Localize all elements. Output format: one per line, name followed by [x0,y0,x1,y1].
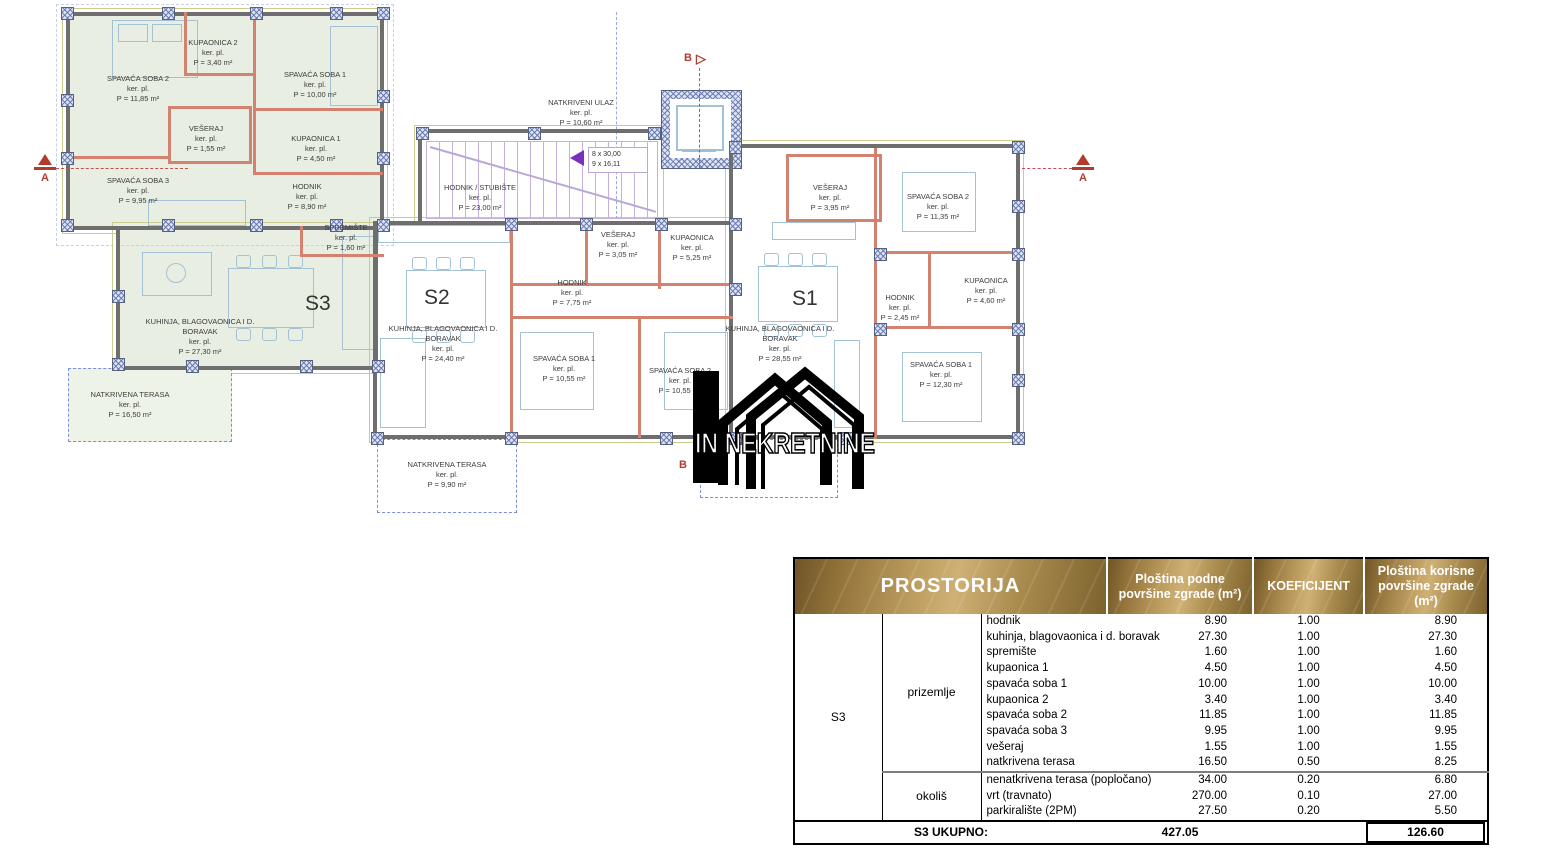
room-label-s2-veseraj: VEŠERAJ ker. pl. P = 3,05 m² [580,230,656,260]
room-label-s1-kuhinja: KUHINJA, BLAGOVAONICA I D. BORAVAK ker. … [715,324,845,364]
room-finish: ker. pl. [792,193,868,203]
room-area: P = 3,95 m² [792,203,868,213]
wall [373,221,733,225]
koef-cell: 1.00 [1253,692,1364,708]
total-label: S3 UKUPNO: [794,821,1107,844]
column [250,219,263,232]
room-name: KUPAONICA [948,276,1024,286]
podne-cell: 16.50 [1107,755,1253,772]
room-area: P = 5,25 m² [654,253,730,263]
kitchen-counter [378,225,510,243]
room-finish: ker. pl. [514,364,614,374]
stair-direction-arrow-icon [570,150,584,166]
section-line-a [56,168,188,169]
stair-dimensions: 8 x 30,00 9 x 16,11 [588,147,648,173]
podne-cell: 9.95 [1107,724,1253,740]
partition [253,12,256,175]
column [162,7,175,20]
podne-cell: 4.50 [1107,661,1253,677]
wall [380,12,384,230]
column [505,432,518,445]
table-row: okoliš nenatkrivena terasa (popločano) 3… [794,772,1488,789]
floor-plan: 8 x 30,00 9 x 16,11 [0,0,1551,530]
header-podne: Ploština podne površine zgrade (m²) [1107,558,1253,614]
unit-label-s2: S2 [424,286,450,310]
section-a-bar [34,167,56,170]
room-name: VEŠERAJ [580,230,656,240]
column [416,127,429,140]
room-finish: ker. pl. [78,400,182,410]
room-label-s1-hodnik: HODNIK ker. pl. P = 2,45 m² [861,293,939,323]
room-label-s2-kuhinja: KUHINJA, BLAGOVAONICA I D. BORAVAK ker. … [378,324,508,364]
agency-watermark: IN NEKRETNINE [693,363,878,491]
room-finish: ker. pl. [304,233,388,243]
room-area: P = 3,40 m² [168,58,258,68]
koef-cell: 1.00 [1253,677,1364,693]
room-cell: spremište [981,645,1107,661]
room-cell: natkrivena terasa [981,755,1107,772]
room-cell: spavaća soba 1 [981,677,1107,693]
korisne-cell: 1.55 [1364,740,1488,756]
podne-cell: 27.50 [1107,804,1253,821]
elevator-car [676,105,724,151]
room-finish: ker. pl. [262,192,352,202]
room-area: P = 11,35 m² [888,212,988,222]
room-finish: ker. pl. [531,108,631,118]
cooktop-icon [166,263,186,283]
partition [66,156,170,159]
column [162,219,175,232]
podne-cell: 270.00 [1107,789,1253,805]
chair [288,328,303,341]
column [371,432,384,445]
header-koeficijent: KOEFICIJENT [1253,558,1364,614]
wall [373,435,737,439]
header-korisne: Ploština korisne površine zgrade (m²) [1364,558,1488,614]
chair [764,253,779,266]
room-finish: ker. pl. [168,134,244,144]
koef-cell: 1.00 [1253,630,1364,646]
floor-group-cell: okoliš [882,772,981,821]
chair [436,257,451,270]
room-name: SPAVAĆA SOBA 1 [514,354,614,364]
room-name: NATKRIVENI ULAZ [531,98,631,108]
section-line-a [1022,168,1072,169]
column [655,218,668,231]
total-korisne: 126.60 [1364,821,1488,844]
room-area: P = 12,30 m² [891,380,991,390]
podne-cell: 3.40 [1107,692,1253,708]
room-label-s2-kupaonica: KUPAONICA ker. pl. P = 5,25 m² [654,233,730,263]
section-a-label: A [41,172,49,184]
room-label-s1-kupaonica: KUPAONICA ker. pl. P = 4,60 m² [948,276,1024,306]
column [660,432,673,445]
room-area: P = 16,50 m² [78,410,182,420]
room-label-s3-terasa: NATKRIVENA TERASA ker. pl. P = 16,50 m² [78,390,182,420]
chair [236,255,251,268]
korisne-cell: 27.00 [1364,789,1488,805]
room-area: P = 11,85 m² [88,94,188,104]
column [112,290,125,303]
total-koef-empty [1253,821,1364,844]
column [61,7,74,20]
column [377,152,390,165]
room-label-s1-spavaca-soba-2: SPAVAĆA SOBA 2 ker. pl. P = 11,35 m² [888,192,988,222]
room-name: HODNIK [532,278,612,288]
room-label-s3-hodnik: HODNIK ker. pl. P = 8,90 m² [262,182,352,212]
room-cell: spavaća soba 2 [981,708,1107,724]
room-name: KUPAONICA 1 [269,134,363,144]
column [1012,374,1025,387]
koef-cell: 0.50 [1253,755,1364,772]
room-area: P = 10,00 m² [265,90,365,100]
column [874,323,887,336]
watermark-text: IN NEKRETNINE [695,428,875,460]
partition [300,226,303,256]
room-finish: ker. pl. [395,470,499,480]
koef-cell: 1.00 [1253,740,1364,756]
section-b-triangle-icon: ▷ [696,51,706,67]
room-area: P = 8,90 m² [262,202,352,212]
section-a-triangle-icon [1076,154,1090,165]
column [61,219,74,232]
room-name: SPAVAĆA SOBA 3 [88,176,188,186]
stair-tread-note: 9 x 16,11 [592,161,620,168]
partition [300,254,384,257]
room-label-s2-terasa: NATKRIVENA TERASA ker. pl. P = 9,90 m² [395,460,499,490]
room-area: P = 27,30 m² [135,347,265,357]
room-cell: nenatkrivena terasa (popločano) [981,772,1107,789]
room-name: HODNIK / STUBIŠTE [430,183,530,193]
total-korisne-box: 126.60 [1366,822,1485,843]
column [729,283,742,296]
koef-cell: 0.20 [1253,772,1364,789]
room-finish: ker. pl. [888,202,988,212]
unit-label-s3: S3 [305,292,331,316]
korisne-cell: 8.90 [1364,614,1488,630]
room-area: P = 23,00 m² [430,203,530,213]
room-finish: ker. pl. [948,286,1024,296]
wall [418,129,422,225]
room-name: SPAVAĆA SOBA 2 [888,192,988,202]
room-cell: vrt (travnato) [981,789,1107,805]
chair [262,255,277,268]
room-finish: ker. pl. [269,144,363,154]
section-b-label: B [684,52,692,64]
room-finish: ker. pl. [891,370,991,380]
wall [66,12,70,230]
section-a-triangle-icon [38,154,52,165]
area-table: PROSTORIJA Ploština podne površine zgrad… [793,557,1489,845]
column [377,7,390,20]
korisne-cell: 8.25 [1364,755,1488,772]
partition [253,108,383,111]
unit-label-s1: S1 [792,287,818,311]
partition [513,316,733,319]
section-a-label: A [1079,172,1087,184]
room-finish: ker. pl. [715,344,845,354]
table-total-row: S3 UKUPNO: 427.05 126.60 [794,821,1488,844]
room-area: P = 10,55 m² [514,374,614,384]
kitchen-counter [772,222,856,240]
room-label-s1-spavaca-soba-1: SPAVAĆA SOBA 1 ker. pl. P = 12,30 m² [891,360,991,390]
column [874,248,887,261]
koef-cell: 0.10 [1253,789,1364,805]
room-area: P = 1,60 m² [304,243,388,253]
room-label-s1-veseraj: VEŠERAJ ker. pl. P = 3,95 m² [792,183,868,213]
chair [412,257,427,270]
room-name: KUHINJA, BLAGOVAONICA I D. BORAVAK [378,324,508,344]
column [648,127,661,140]
room-label-s3-kupaonica-2: KUPAONICA 2 ker. pl. P = 3,40 m² [168,38,258,68]
room-area: P = 24,40 m² [378,354,508,364]
total-podne: 427.05 [1107,821,1253,844]
room-label-s3-veseraj: VEŠERAJ ker. pl. P = 1,55 m² [168,124,244,154]
room-finish: ker. pl. [580,240,656,250]
room-area: P = 10,60 m² [531,118,631,128]
korisne-cell: 4.50 [1364,661,1488,677]
room-area: P = 3,05 m² [580,250,656,260]
room-label-s3-spavaca-soba-3: SPAVAĆA SOBA 3 ker. pl. P = 9,95 m² [88,176,188,206]
room-name: KUHINJA, BLAGOVAONICA I D. BORAVAK [715,324,845,344]
podne-cell: 1.55 [1107,740,1253,756]
podne-cell: 11.85 [1107,708,1253,724]
room-label-s3-kuhinja: KUHINJA, BLAGOVAONICA I D. BORAVAK ker. … [135,317,265,357]
room-area: P = 7,75 m² [532,298,612,308]
room-finish: ker. pl. [135,337,265,347]
room-label-s3-spavaca-soba-2: SPAVAĆA SOBA 2 ker. pl. P = 11,85 m² [88,74,188,104]
room-finish: ker. pl. [861,303,939,313]
room-finish: ker. pl. [265,80,365,90]
room-label-natkriveni-ulaz: NATKRIVENI ULAZ ker. pl. P = 10,60 m² [531,98,631,128]
column [61,94,74,107]
podne-cell: 10.00 [1107,677,1253,693]
room-cell: parkiralište (2PM) [981,804,1107,821]
room-cell: hodnik [981,614,1107,630]
column [330,7,343,20]
room-label-s3-kupaonica-1: KUPAONICA 1 ker. pl. P = 4,50 m² [269,134,363,164]
room-cell: kuhinja, blagovaonica i d. boravak [981,630,1107,646]
room-label-s2-hodnik: HODNIK ker. pl. P = 7,75 m² [532,278,612,308]
koef-cell: 1.00 [1253,645,1364,661]
unit-cell: S3 [794,614,882,821]
room-cell: spavaća soba 3 [981,724,1107,740]
column [250,7,263,20]
koef-cell: 1.00 [1253,708,1364,724]
column [377,90,390,103]
room-finish: ker. pl. [430,193,530,203]
chair [788,253,803,266]
room-name: SPAVAĆA SOBA 1 [265,70,365,80]
room-finish: ker. pl. [378,344,508,354]
wall [116,366,378,370]
room-label-s3-spremiste: SPREMIŠTE ker. pl. P = 1,60 m² [304,223,388,253]
korisne-cell: 6.80 [1364,772,1488,789]
column [505,218,518,231]
section-b-label: B [679,459,687,471]
room-name: HODNIK [262,182,352,192]
room-area: P = 4,50 m² [269,154,363,164]
section-a-bar [1072,167,1094,170]
room-area: P = 4,60 m² [948,296,1024,306]
page: 8 x 30,00 9 x 16,11 [0,0,1551,853]
room-name: NATKRIVENA TERASA [395,460,499,470]
room-area: P = 2,45 m² [861,313,939,323]
section-line-b [699,68,700,168]
pillow [118,24,148,42]
room-label-s3-spavaca-soba-1: SPAVAĆA SOBA 1 ker. pl. P = 10,00 m² [265,70,365,100]
room-finish: ker. pl. [532,288,612,298]
room-area: P = 1,55 m² [168,144,244,154]
partition [510,221,513,439]
header-prostorija: PROSTORIJA [794,558,1107,614]
chair [812,253,827,266]
room-name: SPREMIŠTE [304,223,388,233]
column [300,360,313,373]
column [1012,141,1025,154]
korisne-cell: 5.50 [1364,804,1488,821]
koef-cell: 1.00 [1253,661,1364,677]
room-name: NATKRIVENA TERASA [78,390,182,400]
room-finish: ker. pl. [168,48,258,58]
koef-cell: 1.00 [1253,614,1364,630]
room-label-hodnik-stubiste: HODNIK / STUBIŠTE ker. pl. P = 23,00 m² [430,183,530,213]
house-logo-icon: IN NEKRETNINE [693,363,878,491]
column [1012,200,1025,213]
podne-cell: 8.90 [1107,614,1253,630]
room-area: P = 9,95 m² [88,196,188,206]
partition [253,172,383,175]
column [112,358,125,371]
korisne-cell: 10.00 [1364,677,1488,693]
stair-riser-note: 8 x 30,00 [592,151,621,158]
room-name: KUPAONICA 2 [168,38,258,48]
chair [460,257,475,270]
column [1012,248,1025,261]
koef-cell: 0.20 [1253,804,1364,821]
korisne-cell: 27.30 [1364,630,1488,646]
room-cell: vešeraj [981,740,1107,756]
room-label-s2-spavaca-soba-1: SPAVAĆA SOBA 1 ker. pl. P = 10,55 m² [514,354,614,384]
column [61,152,74,165]
table-header-row: PROSTORIJA Ploština podne površine zgrad… [794,558,1488,614]
korisne-cell: 11.85 [1364,708,1488,724]
room-cell: kupaonica 2 [981,692,1107,708]
room-name: VEŠERAJ [792,183,868,193]
partition [184,73,256,76]
room-finish: ker. pl. [654,243,730,253]
room-area: P = 9,90 m² [395,480,499,490]
column [186,360,199,373]
room-finish: ker. pl. [88,84,188,94]
column [528,127,541,140]
room-name: KUHINJA, BLAGOVAONICA I D. BORAVAK [135,317,265,337]
column [1012,432,1025,445]
room-name: KUPAONICA [654,233,730,243]
floor-group-cell: prizemlje [882,614,981,772]
korisne-cell: 3.40 [1364,692,1488,708]
korisne-cell: 9.95 [1364,724,1488,740]
partition [877,251,1019,254]
room-name: SPAVAĆA SOBA 1 [891,360,991,370]
room-finish: ker. pl. [88,186,188,196]
room-cell: kupaonica 1 [981,661,1107,677]
column [729,141,742,154]
column [729,218,742,231]
partition [877,326,1019,329]
room-name: HODNIK [861,293,939,303]
korisne-cell: 1.60 [1364,645,1488,661]
column [1012,323,1025,336]
room-name: SPAVAĆA SOBA 2 [88,74,188,84]
room-name: VEŠERAJ [168,124,244,134]
koef-cell: 1.00 [1253,724,1364,740]
podne-cell: 1.60 [1107,645,1253,661]
table-row: S3 prizemlje hodnik 8.90 1.00 8.90 [794,614,1488,630]
